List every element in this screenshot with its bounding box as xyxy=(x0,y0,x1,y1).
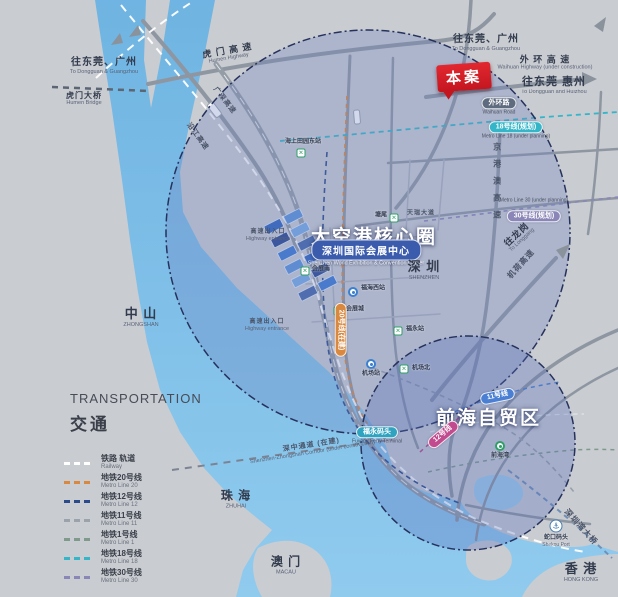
legend-item-en: Metro Line 18 xyxy=(101,559,142,566)
station-marker-qianhai-bay xyxy=(495,441,505,451)
zh: 机场北 xyxy=(412,365,430,372)
label-hongkong: 香 港HONG KONG xyxy=(562,562,599,584)
legend-item-en: Metro Line 12 xyxy=(101,502,142,509)
legend-title-english: TRANSPORTATION xyxy=(70,391,202,406)
label-to-dongguan-guangzhou-ne: 往东莞、广州To Dongguan & Guangzhou xyxy=(449,34,523,52)
legend-item-zh: 铁路 轨道 xyxy=(101,455,135,464)
label-expressway-exit-north: 高速出入口Highway entrance xyxy=(244,229,292,243)
legend-swatch xyxy=(64,557,92,560)
station-marker-airport xyxy=(366,359,376,369)
zh: 天瑞大道 xyxy=(407,211,435,218)
legend-item-zh: 地铁11号线 xyxy=(101,512,141,521)
pill: 福永码头 xyxy=(356,426,398,438)
pill: 外环路 xyxy=(482,97,517,109)
pill-en: Fuyong Ferry Terminal xyxy=(352,439,402,445)
label-macau: 澳 门MACAU xyxy=(271,556,301,577)
legend-item-en: Metro Line 11 xyxy=(101,521,141,528)
legend-item-text: 地铁1号线Metro Line 1 xyxy=(101,531,137,546)
label-to-dongguan-huizhou: 往东莞 惠州To Dongguan and Huizhou xyxy=(518,76,589,96)
legend-item-6: 地铁30号线Metro Line 30 xyxy=(64,570,142,584)
en: Highway entrance xyxy=(246,236,290,242)
en: HONG KONG xyxy=(564,577,598,583)
pill-metro-line-30: Metro Line 30 (under planning)30号线(规划) xyxy=(500,197,568,222)
legend-item-zh: 地铁18号线 xyxy=(101,550,142,559)
legend-item-text: 地铁30号线Metro Line 30 xyxy=(101,569,142,584)
zh: 高速出入口 xyxy=(244,229,292,236)
station-label-shekou-port: 蛇口码头Shekou Port xyxy=(542,535,570,548)
station-marker-shekou-port xyxy=(550,520,563,533)
zh: 澳 门 xyxy=(271,556,301,570)
legend-item-text: 地铁20号线Metro Line 20 xyxy=(101,474,142,489)
legend-item-en: Metro Line 20 xyxy=(101,483,142,490)
legend-item-en: Metro Line 1 xyxy=(101,540,137,547)
legend-item-zh: 地铁20号线 xyxy=(101,474,142,483)
zh: 中 山 xyxy=(122,307,160,322)
pill: 18号线(规划) xyxy=(489,121,543,133)
label-shenzhen: 深 圳SHENZHEN xyxy=(407,260,440,282)
station-label-qianhai-bay: 前海湾 xyxy=(491,453,509,460)
legend-item-0: 铁路 轨道Railway xyxy=(64,456,142,470)
zh: 福永站 xyxy=(406,326,424,333)
label-humen-highway: 虎 门 高 速Humen Highway xyxy=(202,41,255,67)
legend-item-text: 地铁18号线Metro Line 18 xyxy=(101,550,142,565)
zh: 往东莞、广州 xyxy=(67,57,141,69)
station-label-airport: 机场站 xyxy=(362,371,380,378)
station-label-airport-north: 机场北 xyxy=(412,365,430,372)
en: To Dongguan and Huizhou xyxy=(521,89,586,95)
label-waihuan-highway: 外 环 高 速Waihuan Highway (under constructi… xyxy=(493,54,596,71)
venue-badge-pill: 深圳国际会展中心 xyxy=(311,240,421,261)
label-layer: 大空港核心圈 前海自贸区 深圳国际会展中心 Shenzhen World Exh… xyxy=(0,0,618,597)
station-label-huizhan-south: 会展南 xyxy=(312,266,330,273)
en: Waihuan Highway (under construction) xyxy=(498,65,593,71)
zh: 虎门大桥 xyxy=(65,91,103,100)
en: MACAU xyxy=(272,570,300,576)
zh: 珠 海 xyxy=(221,490,251,504)
legend-title-chinese: 交通 xyxy=(70,410,202,435)
station-label-haishang-tianyuan-east: 海上田园东站 xyxy=(285,139,321,146)
station-label-fuhai-west: 福海西站 xyxy=(361,285,385,292)
legend-item-en: Railway xyxy=(101,464,135,471)
legend-swatch xyxy=(64,576,92,579)
legend-item-zh: 地铁1号线 xyxy=(101,531,137,540)
transportation-map: 大空港核心圈 前海自贸区 深圳国际会展中心 Shenzhen World Exh… xyxy=(0,0,618,597)
station-marker-huizhan-south xyxy=(301,267,310,276)
legend-item-2: 地铁12号线Metro Line 12 xyxy=(64,494,142,508)
label-zhongshan: 中 山ZHONGSHAN xyxy=(122,307,160,329)
en: Highway entrance xyxy=(245,326,289,332)
zh: 福海西站 xyxy=(361,285,385,292)
pill: 20号线(在建) xyxy=(334,303,346,357)
pill-en: Metro Line 30 (under planning) xyxy=(500,197,568,203)
label-humen-bridge: 虎门大桥Humen Bridge xyxy=(65,91,103,107)
legend-item-zh: 地铁12号线 xyxy=(101,493,142,502)
station-marker-fuyong xyxy=(394,327,403,336)
label-expressway-exit-south: 高速出入口Highway entrance xyxy=(243,319,291,333)
pill-fuyong-ferry: 福永码头Fuyong Ferry Terminal xyxy=(352,419,402,444)
zh: 外 环 高 速 xyxy=(493,54,596,64)
zh: 广深高速 xyxy=(211,86,237,116)
pill-metro-line-18: 18号线(规划)Metro Line 18 (under planning) xyxy=(482,114,550,139)
zh: 往东莞、广州 xyxy=(449,34,523,46)
en: SHENZHEN xyxy=(409,275,439,281)
pill-metro-line-20: 20号线(在建) xyxy=(334,303,353,357)
zh: 高速出入口 xyxy=(243,319,291,326)
legend-item-4: 地铁1号线Metro Line 1 xyxy=(64,532,142,546)
zh: 塘尾 xyxy=(375,212,387,219)
zh: 机场站 xyxy=(362,371,380,378)
legend-swatch xyxy=(64,519,92,522)
en: To Dongguan & Guangzhou xyxy=(452,46,520,52)
legend-item-5: 地铁18号线Metro Line 18 xyxy=(64,551,142,565)
en: Humen Bridge xyxy=(66,100,101,106)
legend-item-zh: 地铁30号线 xyxy=(101,569,142,578)
project-badge: 本案 xyxy=(436,62,492,93)
station-marker-haishang-tianyuan-east xyxy=(297,149,306,158)
en: ZHUHAI xyxy=(222,504,250,510)
label-tianrui-avenue: 天瑞大道 xyxy=(407,211,435,218)
station-label-tangwei: 塘尾 xyxy=(375,212,387,219)
zh: 往东莞 惠州 xyxy=(518,76,589,89)
pill-waihuan-road: 外环路Waihuan Road xyxy=(482,90,517,115)
project-badge-label: 本案 xyxy=(445,65,482,88)
zh: 沿江高速 xyxy=(184,122,209,153)
zh: 海上田园东站 xyxy=(285,139,321,146)
station-marker-airport-north xyxy=(400,365,409,374)
en: To Dongguan & Guangzhou xyxy=(70,69,138,75)
legend-swatch xyxy=(64,500,92,503)
legend-item-3: 地铁11号线Metro Line 11 xyxy=(64,513,142,527)
legend-item-text: 铁路 轨道Railway xyxy=(101,455,135,470)
label-guangshen-expressway: 广深高速 xyxy=(211,86,237,116)
pill: 12号线 xyxy=(426,418,461,451)
legend-swatch xyxy=(64,481,92,484)
en: Shekou Port xyxy=(542,542,570,548)
label-yanjiang-expressway: 沿江高速 xyxy=(184,122,209,153)
legend-swatch xyxy=(64,538,92,541)
legend-swatch xyxy=(64,462,92,465)
zh: 会展南 xyxy=(312,266,330,273)
en: ZHONGSHAN xyxy=(123,322,158,328)
pill-en: Metro Line 18 (under planning) xyxy=(482,134,550,140)
legend: 铁路 轨道Railway地铁20号线Metro Line 20地铁12号线Met… xyxy=(64,456,142,589)
station-label-fuyong: 福永站 xyxy=(406,326,424,333)
legend-item-1: 地铁20号线Metro Line 20 xyxy=(64,475,142,489)
zh: 香 港 xyxy=(562,562,599,577)
legend-item-text: 地铁12号线Metro Line 12 xyxy=(101,493,142,508)
legend-item-en: Metro Line 30 xyxy=(101,578,142,585)
pill: 30号线(规划) xyxy=(507,210,561,222)
zh: 前海湾 xyxy=(491,453,509,460)
station-marker-fuhai-west xyxy=(348,287,358,297)
label-zhuhai: 珠 海ZHUHAI xyxy=(221,490,251,511)
station-marker-tangwei xyxy=(390,214,399,223)
legend-item-text: 地铁11号线Metro Line 11 xyxy=(101,512,141,527)
zh: 深 圳 xyxy=(407,260,440,275)
legend-title: TRANSPORTATION 交通 xyxy=(70,391,202,435)
label-to-dongguan-guangzhou-nw: 往东莞、广州To Dongguan & Guangzhou xyxy=(67,57,141,75)
